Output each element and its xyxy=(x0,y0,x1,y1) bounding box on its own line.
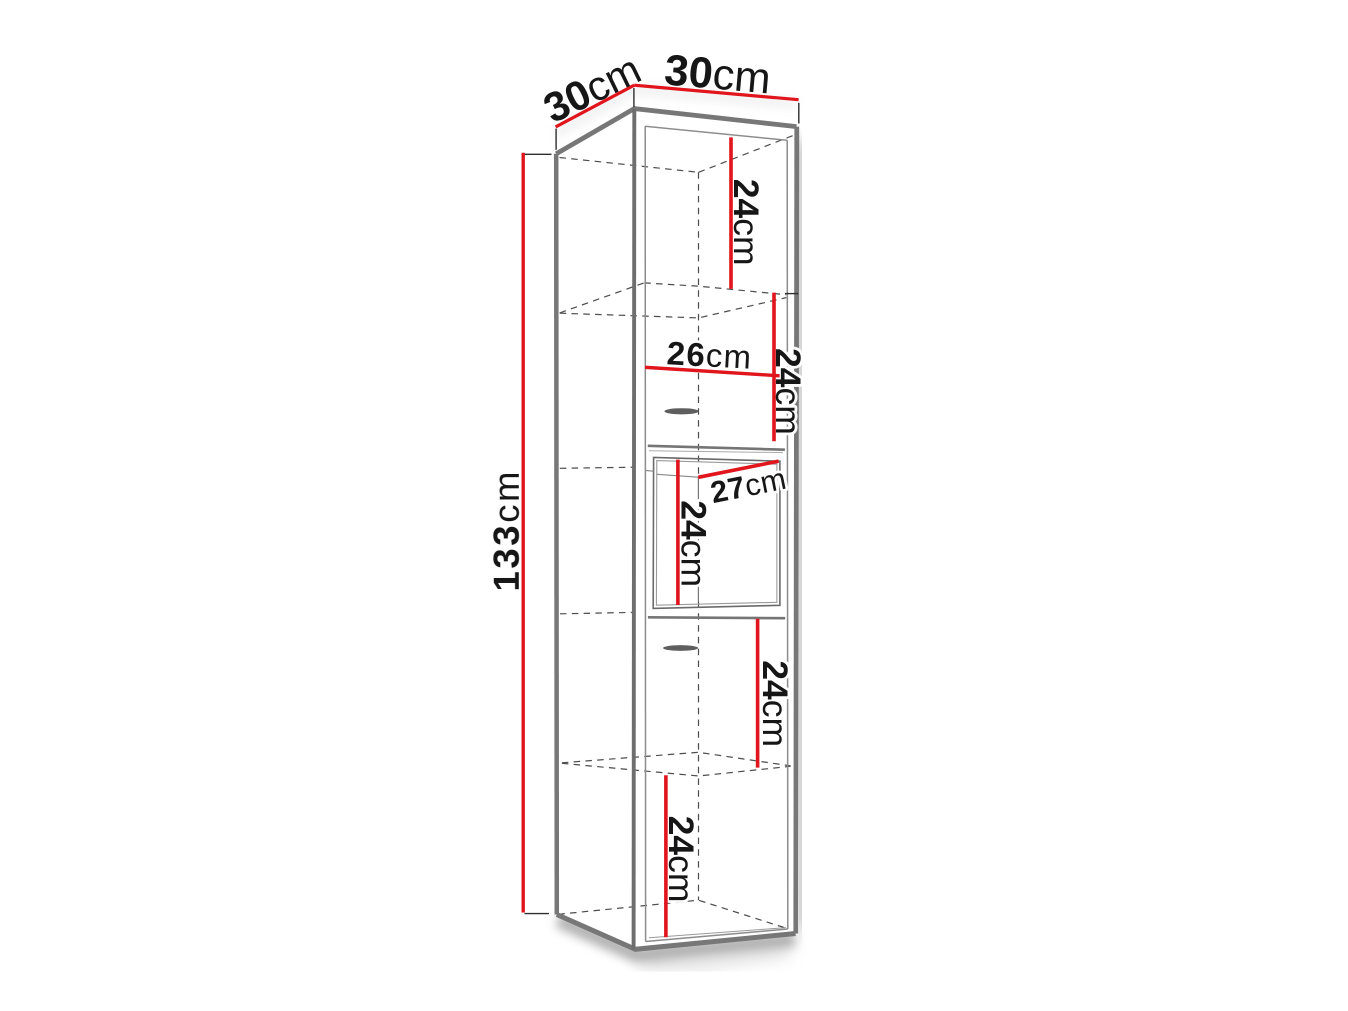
svg-text:24cm: 24cm xyxy=(674,500,714,587)
svg-text:133cm: 133cm xyxy=(486,469,527,592)
svg-text:24cm: 24cm xyxy=(726,179,766,266)
svg-text:24cm: 24cm xyxy=(755,660,795,747)
svg-text:24cm: 24cm xyxy=(768,348,808,435)
svg-text:24cm: 24cm xyxy=(661,816,701,903)
svg-text:30cm: 30cm xyxy=(663,46,773,103)
svg-text:26cm: 26cm xyxy=(666,334,753,375)
